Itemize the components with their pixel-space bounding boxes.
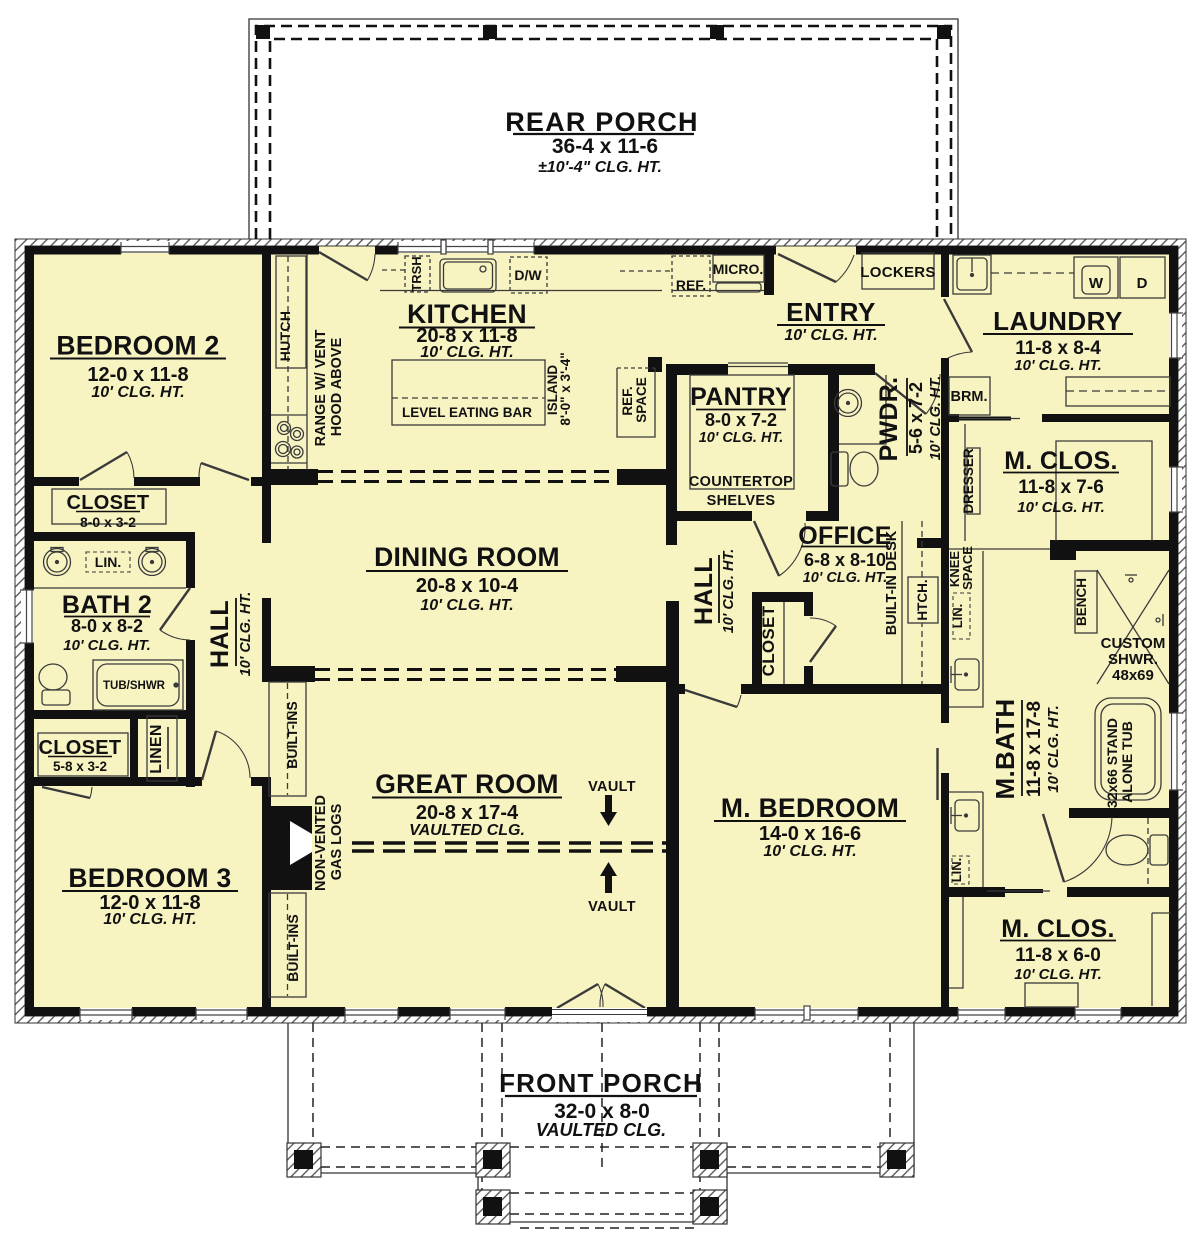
svg-text:M. BEDROOM: M. BEDROOM (721, 793, 899, 823)
svg-text:SPACE: SPACE (634, 377, 649, 423)
svg-text:8'-0" x 3'-4": 8'-0" x 3'-4" (558, 352, 573, 425)
svg-text:14-0 x 16-6: 14-0 x 16-6 (759, 823, 861, 845)
svg-text:8-0 x 8-2: 8-0 x 8-2 (71, 616, 143, 636)
svg-text:HUTCH: HUTCH (277, 311, 293, 362)
svg-text:LIN.: LIN. (95, 554, 121, 570)
svg-text:D/W: D/W (514, 267, 542, 283)
svg-text:10' CLG. HT.: 10' CLG. HT. (1014, 357, 1101, 374)
svg-text:DRESSER: DRESSER (961, 448, 976, 514)
svg-text:PWDR.: PWDR. (875, 377, 903, 462)
svg-text:TRSH: TRSH (409, 256, 424, 291)
svg-text:REAR PORCH: REAR PORCH (505, 107, 699, 137)
svg-text:COUNTERTOP: COUNTERTOP (689, 474, 793, 490)
svg-text:36-4 x 11-6: 36-4 x 11-6 (552, 135, 658, 158)
svg-text:MICRO.: MICRO. (713, 261, 764, 277)
svg-text:LINEN: LINEN (148, 724, 165, 774)
svg-text:HALL: HALL (206, 600, 234, 668)
svg-text:M. CLOS.: M. CLOS. (1004, 447, 1118, 475)
svg-text:VAULT: VAULT (588, 779, 636, 795)
svg-text:10' CLG. HT.: 10' CLG. HT. (63, 637, 150, 654)
svg-text:LIN.: LIN. (949, 858, 964, 883)
svg-text:10' CLG. HT.: 10' CLG. HT. (420, 597, 513, 614)
svg-text:BEDROOM 2: BEDROOM 2 (56, 331, 219, 361)
svg-text:LIN.: LIN. (950, 604, 965, 629)
svg-text:SPACE: SPACE (960, 546, 975, 590)
svg-text:48x69: 48x69 (1112, 667, 1154, 684)
svg-text:BUILT-INS: BUILT-INS (285, 914, 301, 981)
svg-text:8-0 x 3-2: 8-0 x 3-2 (80, 514, 136, 530)
svg-text:LEVEL EATING BAR: LEVEL EATING BAR (402, 405, 532, 420)
svg-text:NON-VENTED: NON-VENTED (313, 795, 329, 891)
svg-text:11-8 x 17-8: 11-8 x 17-8 (1024, 701, 1045, 797)
svg-text:5-8 x 3-2: 5-8 x 3-2 (53, 759, 107, 774)
svg-text:RANGE W/ VENT: RANGE W/ VENT (313, 329, 329, 446)
svg-text:ALONE TUB: ALONE TUB (1119, 721, 1135, 803)
svg-text:10' CLG. HT.: 10' CLG. HT. (928, 376, 944, 461)
svg-text:CUSTOM: CUSTOM (1101, 635, 1166, 652)
svg-text:11-8 x 6-0: 11-8 x 6-0 (1015, 945, 1101, 966)
svg-text:BUILT-IN DESK: BUILT-IN DESK (884, 530, 900, 635)
svg-text:10' CLG. HT.: 10' CLG. HT. (1017, 499, 1104, 516)
svg-text:32x66 STAND: 32x66 STAND (1104, 718, 1120, 808)
svg-text:M.BATH: M.BATH (990, 699, 1020, 800)
svg-text:GREAT ROOM: GREAT ROOM (375, 769, 559, 799)
svg-text:10' CLG. HT.: 10' CLG. HT. (1045, 705, 1062, 792)
svg-text:REF.: REF. (676, 277, 706, 293)
svg-text:11-8 x 7-6: 11-8 x 7-6 (1018, 477, 1104, 498)
svg-text:REF.: REF. (620, 386, 635, 415)
svg-text:SHWR.: SHWR. (1108, 651, 1158, 668)
svg-text:VAULTED CLG.: VAULTED CLG. (409, 822, 525, 839)
svg-text:FRONT PORCH: FRONT PORCH (499, 1068, 703, 1098)
svg-text:10' CLG. HT.: 10' CLG. HT. (784, 327, 877, 344)
svg-text:10' CLG. HT.: 10' CLG. HT. (91, 384, 184, 401)
svg-text:11-8 x 8-4: 11-8 x 8-4 (1015, 338, 1101, 359)
svg-text:20-8 x 17-4: 20-8 x 17-4 (416, 802, 519, 824)
svg-text:HTCH.: HTCH. (915, 579, 930, 620)
svg-text:HOOD ABOVE: HOOD ABOVE (329, 337, 345, 436)
svg-text:5-6 x 7-2: 5-6 x 7-2 (906, 382, 926, 454)
svg-text:PANTRY: PANTRY (690, 383, 792, 411)
svg-text:BEDROOM 3: BEDROOM 3 (68, 863, 231, 893)
svg-text:10' CLG. HT.: 10' CLG. HT. (238, 592, 254, 677)
svg-text:10' CLG. HT.: 10' CLG. HT. (803, 570, 888, 586)
svg-text:BRM.: BRM. (950, 389, 987, 405)
svg-text:D: D (1137, 275, 1148, 292)
svg-text:10' CLG. HT.: 10' CLG. HT. (699, 430, 784, 446)
svg-text:ENTRY: ENTRY (786, 297, 876, 327)
svg-text:6-8 x 8-10: 6-8 x 8-10 (804, 550, 886, 570)
svg-text:LAUNDRY: LAUNDRY (993, 306, 1123, 336)
svg-text:BATH 2: BATH 2 (62, 591, 152, 619)
svg-text:LOCKERS: LOCKERS (860, 264, 935, 281)
svg-text:VAULTED CLG.: VAULTED CLG. (536, 1120, 666, 1140)
svg-text:GAS LOGS: GAS LOGS (329, 803, 345, 880)
svg-text:BENCH: BENCH (1074, 578, 1089, 626)
svg-text:10' CLG. HT.: 10' CLG. HT. (763, 843, 856, 860)
svg-text:W: W (1089, 275, 1104, 292)
svg-text:M. CLOS.: M. CLOS. (1001, 915, 1115, 943)
svg-text:SHELVES: SHELVES (707, 493, 776, 509)
svg-text:20-8 x 10-4: 20-8 x 10-4 (416, 575, 519, 597)
svg-text:10' CLG. HT.: 10' CLG. HT. (721, 549, 737, 634)
svg-text:±10'-4" CLG. HT.: ±10'-4" CLG. HT. (538, 159, 662, 176)
svg-text:HALL: HALL (690, 557, 718, 625)
svg-text:TUB/SHWR: TUB/SHWR (103, 680, 166, 692)
svg-text:VAULT: VAULT (588, 899, 636, 915)
svg-text:10' CLG. HT.: 10' CLG. HT. (1014, 966, 1101, 983)
svg-text:8-0 x 7-2: 8-0 x 7-2 (705, 410, 777, 430)
svg-text:DINING ROOM: DINING ROOM (374, 542, 560, 572)
svg-text:BUILT-INS: BUILT-INS (284, 701, 300, 768)
svg-text:CLOSET: CLOSET (759, 605, 778, 676)
svg-text:10' CLG. HT.: 10' CLG. HT. (103, 911, 196, 928)
svg-text:10' CLG. HT.: 10' CLG. HT. (420, 344, 513, 361)
svg-text:12-0 x 11-8: 12-0 x 11-8 (87, 364, 188, 386)
